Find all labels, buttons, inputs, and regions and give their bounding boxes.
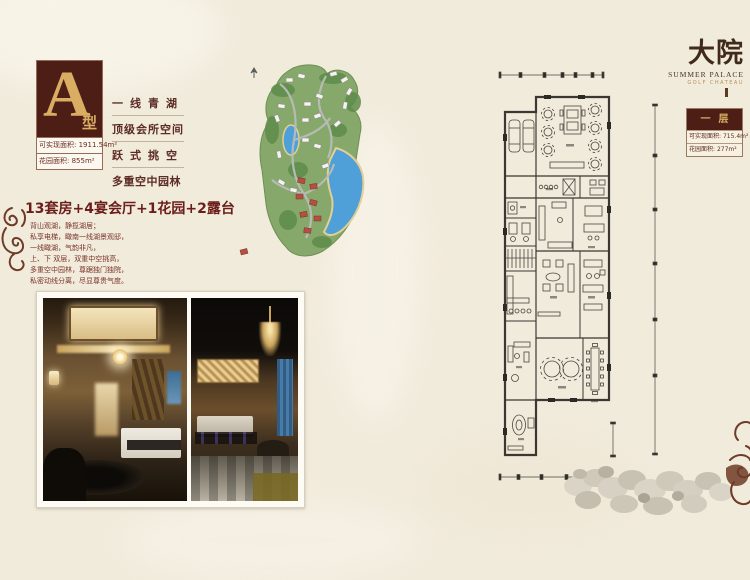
selling-points-list: 一线青湖 顶级会所空间 跃式挑空 多重空中园林 (112, 90, 184, 193)
selling-point: 跃式挑空 (112, 142, 184, 168)
description-line: 多重空中园林，尊踞独门独院， (30, 265, 180, 276)
background-cloud-texture (120, 500, 420, 580)
floor-usable-area-label: 可实现面积: (689, 133, 721, 140)
type-suffix: 型 (82, 112, 97, 133)
interior-photos-frame (36, 291, 305, 508)
garden-area-row: 花园面积: 855m² (37, 153, 102, 169)
background-cloud-texture (0, 0, 220, 90)
blue-curtain (277, 359, 293, 436)
chandelier-glow (112, 349, 128, 365)
description-line: 私享电梯，瞰南一线湖景观邸， (30, 232, 180, 243)
wall-lamp (49, 371, 59, 385)
ceiling-panel (69, 306, 158, 341)
north-indicator-icon (251, 68, 257, 78)
garden-area-value: 855m² (72, 157, 95, 165)
dining-chairs (195, 432, 257, 444)
description-line: 一线瞰湖，气韵非凡， (30, 243, 180, 254)
interior-photo-bedroom (43, 298, 187, 501)
description-line: 私密动线分离，尽显尊贵气度。 (30, 276, 180, 287)
usable-area-label: 可实现面积: (39, 141, 76, 149)
floor-plan-drawing (478, 56, 673, 491)
corridor-glow (95, 383, 118, 436)
brand-logotype: 大院 (666, 38, 744, 68)
type-a-badge: A 型 可实现面积: 1911.54m² 花园面积: 855m² (36, 60, 103, 170)
panel-wall (132, 359, 164, 420)
interior-photo-dining (191, 298, 298, 501)
patterned-cove (197, 359, 259, 383)
window-glow (167, 371, 181, 403)
floor-garden-area-label: 花园面积: (689, 146, 715, 153)
sofa-silhouette (43, 448, 86, 501)
selling-point: 一线青湖 (112, 90, 184, 116)
stone-cloud-watermark (558, 448, 738, 533)
lake (324, 148, 363, 235)
brand-tagline: GOLF CHATEAU (666, 80, 744, 86)
selling-point: 顶级会所空间 (112, 116, 184, 142)
cloud-swirl-ornament-right (724, 416, 750, 516)
floor-badge: 一层 可实现面积: 715.4m² 花园面积: 277m² (686, 108, 743, 157)
description-line: 背山观湖，静揽湖居； (30, 221, 180, 232)
floor-usable-area-row: 可实现面积: 715.4m² (687, 130, 742, 143)
garden-area-label: 花园面积: (39, 157, 69, 165)
usable-area-row: 可实现面积: 1911.54m² (37, 137, 102, 153)
unit-description: 背山观湖，静揽湖居； 私享电梯，瞰南一线湖景观邸， 一线瞰湖，气韵非凡， 上、下… (30, 221, 180, 287)
floor-garden-area-row: 花园面积: 277m² (687, 143, 742, 156)
gold-carpet (253, 473, 298, 501)
brand-seal-mark (725, 88, 728, 97)
selling-point: 多重空中园林 (112, 168, 184, 193)
brand-subtitle: SUMMER PALACE (666, 70, 744, 79)
unit-headline: 13套房+4宴会厅+1花园+2露台 (25, 198, 235, 218)
wall-openings (503, 95, 611, 435)
floor-garden-area-value: 277m² (717, 146, 737, 153)
description-line: 上、下 双层，双重中空挑高， (30, 254, 180, 265)
chandelier-glow (259, 322, 281, 356)
side-table (257, 440, 289, 456)
floor-title: 一层 (687, 109, 742, 130)
site-master-plan-image (238, 60, 378, 265)
brand-block: 大院 SUMMER PALACE GOLF CHATEAU (666, 38, 744, 86)
type-a-letterbox: A 型 (37, 61, 102, 137)
bed-runner (127, 440, 182, 450)
floor-usable-area-value: 715.4m² (723, 133, 748, 140)
